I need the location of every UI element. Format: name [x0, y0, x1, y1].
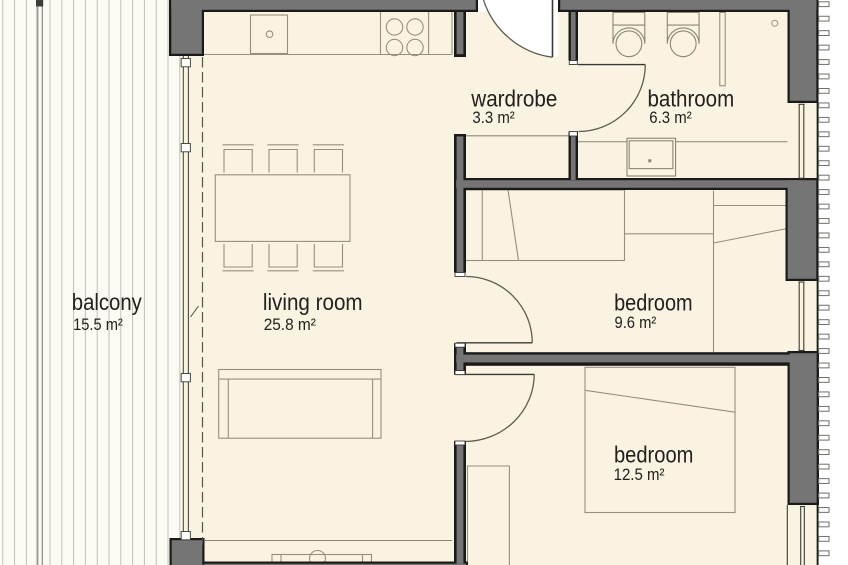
svg-text:12.5 m²: 12.5 m²	[614, 465, 665, 484]
svg-text:bedroom: bedroom	[614, 289, 693, 315]
svg-text:3.3 m²: 3.3 m²	[472, 108, 515, 127]
svg-text:living room: living room	[263, 289, 363, 315]
svg-text:6.3 m²: 6.3 m²	[649, 108, 692, 127]
svg-text:9.6 m²: 9.6 m²	[615, 313, 657, 332]
svg-text:bedroom: bedroom	[614, 441, 693, 467]
svg-text:25.8 m²: 25.8 m²	[264, 315, 317, 334]
svg-text:balcony: balcony	[72, 289, 142, 315]
svg-text:15.5 m²: 15.5 m²	[73, 315, 123, 334]
